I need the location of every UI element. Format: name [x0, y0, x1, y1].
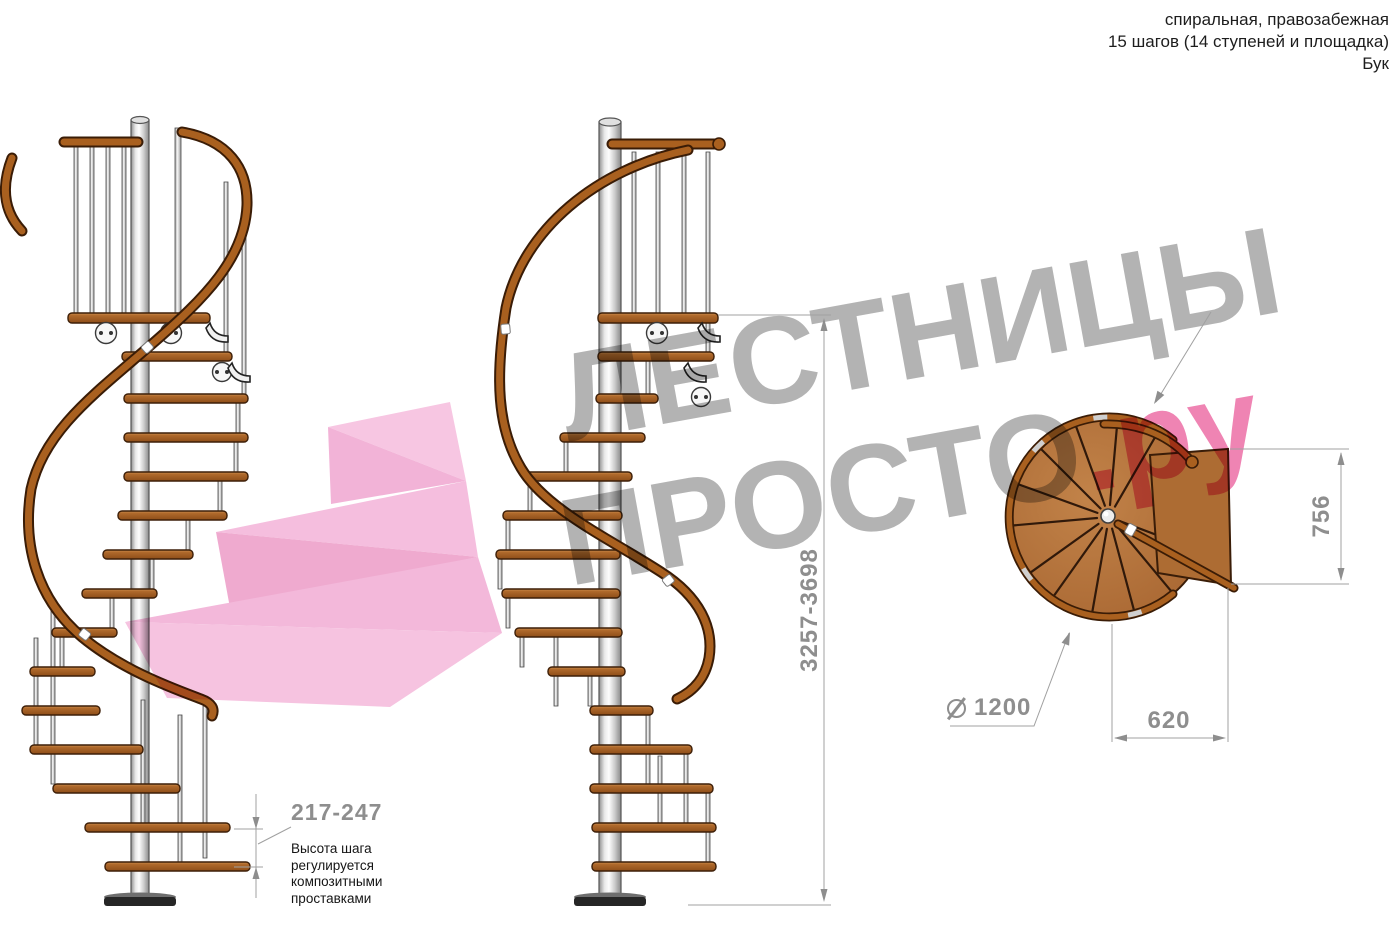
dim-total-height: 3257-3698	[796, 548, 824, 672]
dim-landing-depth: 756	[1308, 494, 1336, 537]
note-line-4: проставками	[291, 891, 382, 908]
material: Бук	[1108, 53, 1389, 75]
diameter-value: 1200	[974, 694, 1031, 722]
pink-arrow-watermark	[125, 402, 502, 707]
dim-diameter: 1200	[947, 694, 1031, 722]
staircase-drawing-page: ЛЕСТНИЦЫ ПРОСТО.ру	[0, 0, 1400, 951]
step-height-note: Высота шага регулируется композитными пр…	[291, 841, 382, 907]
note-line-2: регулируется	[291, 858, 382, 875]
overlay-layer	[0, 0, 1400, 951]
staircase-type: спиральная, правозабежная	[1108, 9, 1389, 31]
diameter-icon	[947, 699, 966, 718]
note-line-1: Высота шага	[291, 841, 382, 858]
title-block: спиральная, правозабежная 15 шагов (14 с…	[1108, 9, 1389, 75]
note-line-3: композитными	[291, 874, 382, 891]
dim-step-height: 217-247	[291, 799, 382, 826]
dim-tread-width: 620	[1147, 707, 1190, 735]
steps-count: 15 шагов (14 ступеней и площадка)	[1108, 31, 1389, 53]
